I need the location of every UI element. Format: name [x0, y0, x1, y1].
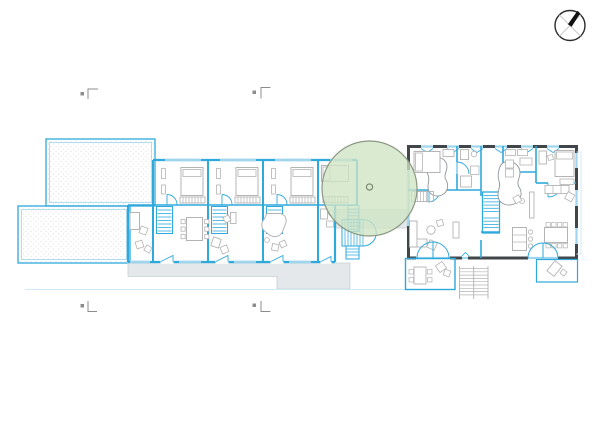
section-marker-top-center — [253, 88, 271, 99]
terrace-hatched-lower — [18, 206, 130, 263]
terrace-left — [406, 259, 456, 290]
unit-2 — [211, 168, 260, 255]
tree-symbol — [322, 141, 417, 236]
section-marker-bottom-left — [81, 301, 98, 312]
floor-plan-canvas — [0, 0, 600, 425]
north-arrow-icon — [555, 11, 585, 41]
walkway-lower — [128, 263, 350, 289]
terrace-hatched-upper — [46, 139, 155, 206]
exterior-steps — [460, 266, 489, 299]
right-building-door-arcs — [428, 162, 562, 202]
site-plan-drawing — [0, 0, 600, 425]
section-marker-bottom-center — [253, 301, 271, 312]
unit-3 — [262, 168, 315, 252]
tree-canopy — [322, 141, 417, 236]
right-building — [406, 145, 582, 299]
section-marker-top-left — [81, 89, 99, 99]
right-building-stair — [483, 192, 500, 233]
terrace-right — [537, 260, 578, 283]
